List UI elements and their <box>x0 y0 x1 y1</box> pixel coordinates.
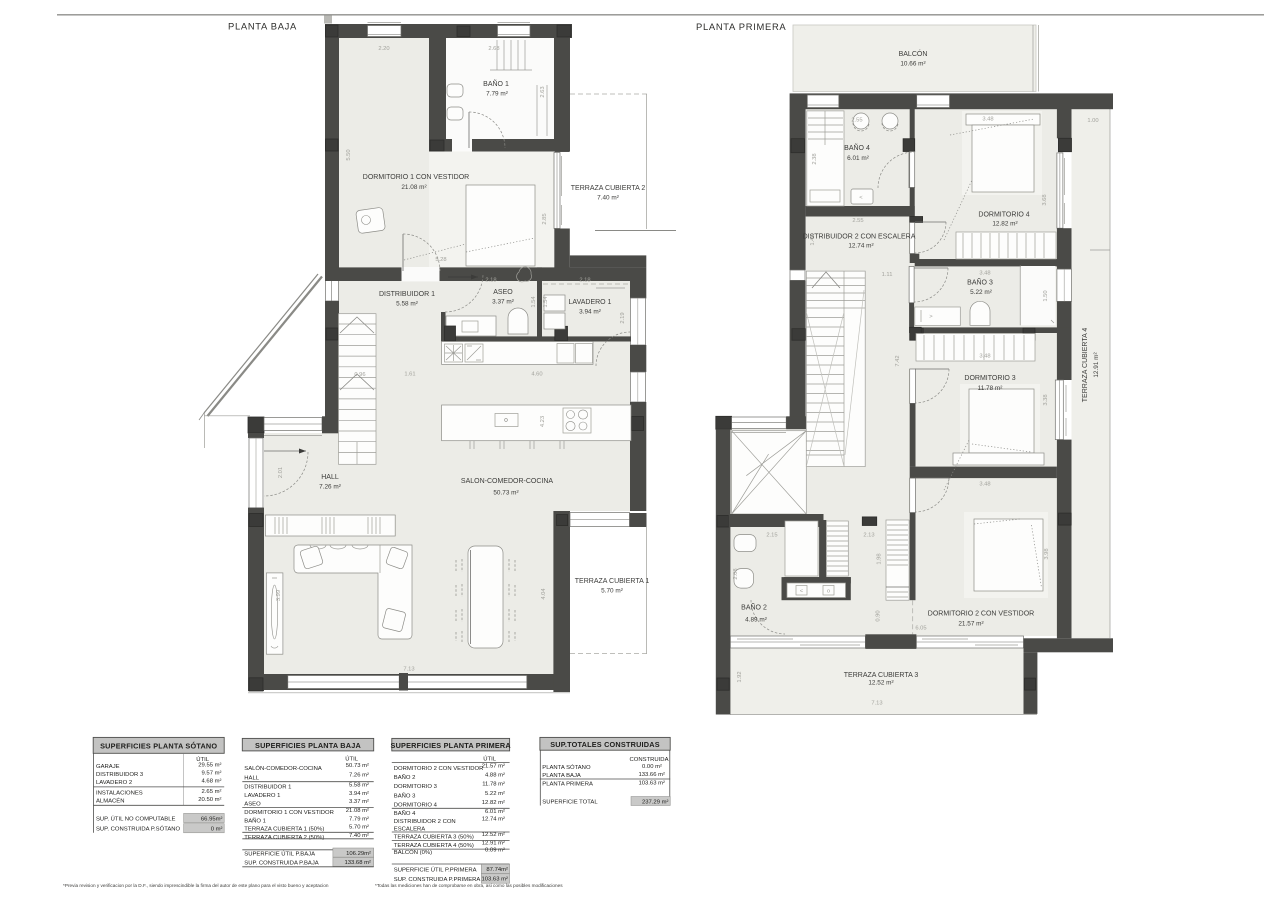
svg-text:5.50: 5.50 <box>346 149 352 160</box>
svg-text:PLANTA BAJA: PLANTA BAJA <box>228 21 297 32</box>
svg-text:12.52 m²: 12.52 m² <box>868 680 893 687</box>
svg-text:7.26 m²: 7.26 m² <box>319 484 341 491</box>
svg-text:*Todas las mediciones han de c: *Todas las mediciones han de comprobarse… <box>375 883 563 888</box>
svg-text:TERRAZA CUBIERTA 4: TERRAZA CUBIERTA 4 <box>1082 328 1089 403</box>
svg-text:HALL: HALL <box>321 474 339 481</box>
svg-text:2.13: 2.13 <box>863 533 874 539</box>
svg-text:7.13: 7.13 <box>403 667 414 673</box>
svg-text:12.91 m²: 12.91 m² <box>1093 352 1100 377</box>
svg-text:10.66 m²: 10.66 m² <box>900 61 925 68</box>
svg-text:DORMITORIO 2 CON VESTIDOR: DORMITORIO 2 CON VESTIDOR <box>394 766 484 772</box>
svg-text:3.48: 3.48 <box>979 354 990 360</box>
svg-text:1.45: 1.45 <box>810 234 816 245</box>
svg-text:50.73 m²: 50.73 m² <box>346 763 369 769</box>
svg-text:*Previa revision y verificacio: *Previa revision y verificacion por la D… <box>63 883 329 888</box>
svg-text:1.92: 1.92 <box>737 671 743 682</box>
svg-text:ALMACÉN: ALMACÉN <box>96 797 124 804</box>
svg-text:21.57 m²: 21.57 m² <box>482 763 505 769</box>
svg-text:PLANTA PRIMERA: PLANTA PRIMERA <box>696 21 786 32</box>
svg-text:LAVADERO 1: LAVADERO 1 <box>244 793 280 799</box>
svg-text:4.89 m²: 4.89 m² <box>745 617 767 624</box>
svg-text:SALON-COMEDOR-COCINA: SALON-COMEDOR-COCINA <box>461 478 554 485</box>
svg-text:BAÑO 3: BAÑO 3 <box>394 792 416 799</box>
svg-text:12.82 m²: 12.82 m² <box>992 221 1017 228</box>
svg-text:7.40 m²: 7.40 m² <box>597 195 619 202</box>
svg-text:3.48: 3.48 <box>979 482 990 488</box>
svg-text:ASEO: ASEO <box>493 289 513 296</box>
svg-text:12.52 m²: 12.52 m² <box>482 832 505 838</box>
svg-text:3.99: 3.99 <box>276 590 282 601</box>
svg-text:SUP. CONSTRUIDA P.BAJA: SUP. CONSTRUIDA P.BAJA <box>244 860 318 866</box>
svg-text:1.61: 1.61 <box>404 372 415 378</box>
svg-text:0 m²: 0 m² <box>211 826 223 832</box>
svg-text:5.22 m²: 5.22 m² <box>970 289 992 296</box>
svg-text:TERRAZA CUBIERTA 2: TERRAZA CUBIERTA 2 <box>571 185 646 192</box>
svg-text:66.95m²: 66.95m² <box>201 816 223 822</box>
svg-text:133.68 m²: 133.68 m² <box>344 860 371 866</box>
svg-text:DORMITORIO 3: DORMITORIO 3 <box>394 784 438 790</box>
svg-text:BAÑO 1: BAÑO 1 <box>244 818 266 825</box>
svg-text:103.63 m²: 103.63 m² <box>638 781 665 787</box>
svg-text:21.57 m²: 21.57 m² <box>958 621 983 628</box>
svg-text:DISTRIBUIDOR 1: DISTRIBUIDOR 1 <box>244 784 291 790</box>
svg-text:SUP. ÚTIL NO COMPUTABLE: SUP. ÚTIL NO COMPUTABLE <box>96 816 176 823</box>
svg-text:0.96: 0.96 <box>354 372 365 378</box>
svg-text:BAÑO 4: BAÑO 4 <box>844 143 870 152</box>
svg-text:0.90: 0.90 <box>876 610 882 621</box>
svg-text:GARAJE: GARAJE <box>96 764 120 770</box>
svg-text:11.78 m²: 11.78 m² <box>978 385 1003 392</box>
svg-text:PLANTA SÓTANO: PLANTA SÓTANO <box>542 764 591 771</box>
svg-text:7.79 m²: 7.79 m² <box>349 817 369 823</box>
svg-text:1.54: 1.54 <box>531 296 537 308</box>
svg-text:3.37 m²: 3.37 m² <box>492 299 514 306</box>
svg-text:5.22 m²: 5.22 m² <box>485 791 505 797</box>
svg-text:BAÑO 3: BAÑO 3 <box>967 278 993 287</box>
svg-text:ÚTIL: ÚTIL <box>345 755 358 762</box>
svg-text:BAÑO 4: BAÑO 4 <box>394 810 416 817</box>
svg-text:TERRAZA CUBIERTA 3 (50%): TERRAZA CUBIERTA 3 (50%) <box>394 834 474 840</box>
svg-text:2.85: 2.85 <box>542 213 548 224</box>
svg-text:6.05: 6.05 <box>915 626 926 632</box>
svg-text:SUPERFICIE ÚTIL P.BAJA: SUPERFICIE ÚTIL P.BAJA <box>244 850 315 857</box>
svg-text:SUP.TOTALES CONSTRUIDAS: SUP.TOTALES CONSTRUIDAS <box>550 740 660 749</box>
svg-text:7.26 m²: 7.26 m² <box>349 773 369 779</box>
svg-text:1.11: 1.11 <box>882 272 893 278</box>
svg-text:SUPERFICIE TOTAL: SUPERFICIE TOTAL <box>542 800 598 806</box>
svg-text:2.20: 2.20 <box>378 46 389 52</box>
svg-text:TERRAZA CUBIERTA 4 (50%): TERRAZA CUBIERTA 4 (50%) <box>394 843 474 849</box>
svg-text:3.68: 3.68 <box>1042 194 1048 205</box>
svg-text:2.68: 2.68 <box>488 46 499 52</box>
svg-text:SUPERFICIES PLANTA BAJA: SUPERFICIES PLANTA BAJA <box>255 741 361 750</box>
svg-text:29.55 m²: 29.55 m² <box>198 763 221 769</box>
svg-text:TERRAZA CUBIERTA 1 (50%): TERRAZA CUBIERTA 1 (50%) <box>244 827 324 833</box>
svg-text:2.18: 2.18 <box>579 278 590 284</box>
svg-text:2.08: 2.08 <box>733 568 739 579</box>
svg-text:o: o <box>827 589 830 595</box>
svg-text:4.04: 4.04 <box>541 588 547 600</box>
svg-text:7.79 m²: 7.79 m² <box>486 91 508 98</box>
svg-text:4.23: 4.23 <box>540 416 546 427</box>
svg-text:3.98: 3.98 <box>1044 548 1050 559</box>
svg-text:3.94 m²: 3.94 m² <box>579 309 601 316</box>
svg-text:DORMITORIO 1 CON VESTIDOR: DORMITORIO 1 CON VESTIDOR <box>363 174 469 181</box>
svg-text:3.38: 3.38 <box>1043 394 1049 405</box>
svg-text:0.09 m²: 0.09 m² <box>485 847 505 853</box>
svg-text:4.68 m²: 4.68 m² <box>202 779 222 785</box>
svg-text:TERRAZA CUBIERTA 1: TERRAZA CUBIERTA 1 <box>575 578 650 585</box>
svg-text:21.08 m²: 21.08 m² <box>401 184 426 191</box>
svg-text:DISTRIBUIDOR 2 CON: DISTRIBUIDOR 2 CON <box>394 819 456 825</box>
svg-text:2.65 m²: 2.65 m² <box>202 789 222 795</box>
svg-text:6.01 m²: 6.01 m² <box>485 809 505 815</box>
svg-text:106.29m²: 106.29m² <box>346 851 371 857</box>
svg-text:2.19: 2.19 <box>620 312 626 323</box>
svg-text:BAÑO 2: BAÑO 2 <box>741 603 767 612</box>
svg-text:2.18: 2.18 <box>485 278 496 284</box>
svg-text:DORMITORIO 1 CON VESTIDOR: DORMITORIO 1 CON VESTIDOR <box>244 810 334 816</box>
svg-text:DORMITORIO 4: DORMITORIO 4 <box>978 212 1029 219</box>
svg-text:5.58 m²: 5.58 m² <box>349 782 369 788</box>
svg-text:SUPERFICIE ÚTIL P.PRIMERA: SUPERFICIE ÚTIL P.PRIMERA <box>394 867 477 874</box>
svg-text:LAVADERO 2: LAVADERO 2 <box>96 780 132 786</box>
svg-text:7.40 m²: 7.40 m² <box>349 833 369 839</box>
svg-text:DISTRIBUIDOR 1: DISTRIBUIDOR 1 <box>379 291 435 298</box>
svg-text:4.88 m²: 4.88 m² <box>485 773 505 779</box>
svg-text:3.94 m²: 3.94 m² <box>349 791 369 797</box>
svg-text:1.00: 1.00 <box>1087 118 1098 124</box>
svg-text:5.70 m²: 5.70 m² <box>349 825 369 831</box>
svg-text:11.78 m²: 11.78 m² <box>482 782 505 788</box>
svg-text:SALÓN-COMEDOR-COCINA: SALÓN-COMEDOR-COCINA <box>244 765 322 772</box>
svg-text:50.73 m²: 50.73 m² <box>493 490 518 497</box>
svg-text:2.63: 2.63 <box>540 86 546 97</box>
svg-text:DISTRIBUIDOR 2 CON ESCALERA: DISTRIBUIDOR 2 CON ESCALERA <box>803 234 916 241</box>
svg-text:3.37 m²: 3.37 m² <box>349 799 369 805</box>
svg-text:SUPERFICIES PLANTA PRIMERA: SUPERFICIES PLANTA PRIMERA <box>391 741 512 750</box>
svg-text:SUP. CONSTRUIDA P.SÓTANO: SUP. CONSTRUIDA P.SÓTANO <box>96 826 181 833</box>
svg-text:PLANTA BAJA: PLANTA BAJA <box>542 773 581 779</box>
svg-text:DORMITORIO 3: DORMITORIO 3 <box>964 375 1015 382</box>
svg-text:87.74m²: 87.74m² <box>486 867 508 873</box>
svg-text:5.58 m²: 5.58 m² <box>396 301 418 308</box>
svg-text:6.01 m²: 6.01 m² <box>847 155 869 162</box>
svg-text:1.50: 1.50 <box>1043 290 1049 301</box>
svg-text:1.98: 1.98 <box>877 553 883 564</box>
svg-text:20.50 m²: 20.50 m² <box>198 797 221 803</box>
svg-text:2.55: 2.55 <box>852 218 863 224</box>
svg-text:0.00 m²: 0.00 m² <box>642 764 662 770</box>
svg-text:133.66 m²: 133.66 m² <box>638 772 665 778</box>
svg-text:2.55: 2.55 <box>851 118 862 124</box>
svg-text:7.42: 7.42 <box>895 355 901 366</box>
svg-text:DORMITORIO 4: DORMITORIO 4 <box>394 802 438 808</box>
svg-text:4.60: 4.60 <box>531 372 542 378</box>
svg-text:2.38: 2.38 <box>812 153 818 164</box>
svg-text:ESCALERA: ESCALERA <box>394 826 426 832</box>
svg-text:BAÑO 2: BAÑO 2 <box>394 774 416 781</box>
svg-text:LAVADERO 1: LAVADERO 1 <box>569 299 612 306</box>
svg-text:HALL: HALL <box>244 776 259 782</box>
svg-text:2.01: 2.01 <box>278 467 284 478</box>
svg-text:21.08 m²: 21.08 m² <box>346 808 369 814</box>
svg-text:3.48: 3.48 <box>979 271 990 277</box>
svg-text:237.29 m²: 237.29 m² <box>642 799 669 805</box>
svg-text:103.63 m²: 103.63 m² <box>481 877 508 883</box>
svg-text:DORMITORIO 2 CON VESTIDOR: DORMITORIO 2 CON VESTIDOR <box>928 611 1034 618</box>
svg-text:7.13: 7.13 <box>871 701 882 707</box>
svg-text:12.74 m²: 12.74 m² <box>482 817 505 823</box>
svg-text:BAÑO 1: BAÑO 1 <box>483 79 509 88</box>
svg-text:CONSTRUIDA: CONSTRUIDA <box>630 757 669 763</box>
svg-text:ASEO: ASEO <box>244 801 261 807</box>
svg-text:12.82 m²: 12.82 m² <box>482 800 505 806</box>
svg-text:3.48: 3.48 <box>982 117 993 123</box>
svg-text:INSTALACIONES: INSTALACIONES <box>96 790 143 796</box>
svg-text:5.70 m²: 5.70 m² <box>601 588 623 595</box>
svg-text:5.28: 5.28 <box>435 257 446 263</box>
svg-text:12.74 m²: 12.74 m² <box>848 243 873 250</box>
svg-text:1.54: 1.54 <box>543 296 549 308</box>
svg-text:TERRAZA CUBIERTA 2 (50%): TERRAZA CUBIERTA 2 (50%) <box>244 835 324 841</box>
svg-text:PLANTA PRIMERA: PLANTA PRIMERA <box>542 782 593 788</box>
svg-text:SUPERFICIES PLANTA SÓTANO: SUPERFICIES PLANTA SÓTANO <box>100 742 217 751</box>
svg-text:TERRAZA CUBIERTA 3: TERRAZA CUBIERTA 3 <box>844 672 919 679</box>
svg-text:BALCÓN: BALCÓN <box>899 49 928 58</box>
svg-text:DISTRIBUIDOR 3: DISTRIBUIDOR 3 <box>96 772 144 778</box>
svg-text:BALCÓN (0%): BALCÓN (0%) <box>394 849 432 856</box>
svg-text:2.15: 2.15 <box>766 533 777 539</box>
svg-text:12.91 m²: 12.91 m² <box>482 841 505 847</box>
svg-text:9.57 m²: 9.57 m² <box>202 771 222 777</box>
svg-text:ÚTIL: ÚTIL <box>483 755 496 762</box>
